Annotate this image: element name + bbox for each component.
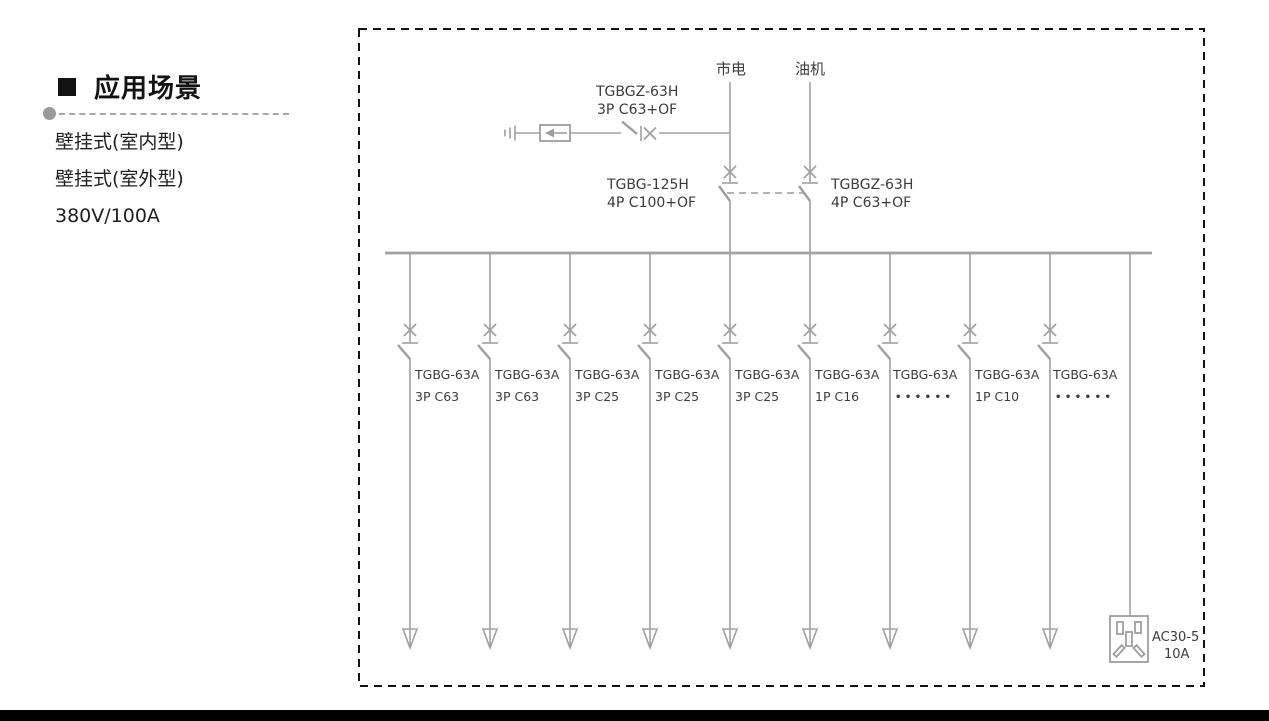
diagram-border (359, 29, 1204, 686)
generator-label: 油机 (795, 60, 825, 78)
branch-5: TGBG-63A 3P C25 (718, 253, 800, 648)
branch-model: TGBG-63A (574, 367, 640, 382)
branch-9: TGBG-63A •••••• (1038, 253, 1118, 648)
spd-breaker-model: TGBGZ-63H (595, 84, 678, 100)
branch-2: TGBG-63A 3P C63 (478, 253, 560, 648)
mains-breaker-rating: 4P C100+OF (607, 195, 696, 211)
branch-rating-dots: •••••• (1055, 392, 1114, 403)
branch-rating: 3P C25 (735, 389, 779, 404)
spd-branch: TGBGZ-63H 3P C63+OF (505, 84, 730, 141)
branch-6: TGBG-63A 1P C16 (798, 253, 880, 648)
spd-breaker-icon (622, 122, 656, 142)
branch-rating: 1P C16 (815, 389, 859, 404)
branch-3: TGBG-63A 3P C25 (558, 253, 640, 648)
branch-rating: 3P C25 (655, 389, 699, 404)
single-line-diagram: 市电 TGBG-125H 4P C100+OF 油机 TGBGZ-63H 4P … (0, 0, 1269, 721)
branch-rating: 1P C10 (975, 389, 1019, 404)
socket-rating: 10A (1164, 647, 1190, 662)
branch-1: TGBG-63A 3P C63 (398, 253, 480, 648)
branch-rating: 3P C25 (575, 389, 619, 404)
branch-4: TGBG-63A 3P C25 (638, 253, 720, 648)
page: 应用场景 壁挂式(室内型) 壁挂式(室外型) 380V/100A 市 (0, 0, 1269, 721)
branch-model: TGBG-63A (814, 367, 880, 382)
spd-icon (540, 125, 570, 141)
branch-model: TGBG-63A (654, 367, 720, 382)
branch-7: TGBG-63A •••••• (878, 253, 958, 648)
branch-model: TGBG-63A (1052, 367, 1118, 382)
socket-branch: AC30-5 10A (1110, 253, 1199, 662)
branch-model: TGBG-63A (734, 367, 800, 382)
mains-label: 市电 (716, 60, 746, 78)
branch-model: TGBG-63A (414, 367, 480, 382)
generator-breaker-rating: 4P C63+OF (831, 195, 911, 211)
branch-rating-dots: •••••• (895, 392, 954, 403)
branch-rating: 3P C63 (495, 389, 539, 404)
branch-model: TGBG-63A (494, 367, 560, 382)
socket-model: AC30-5 (1152, 630, 1199, 645)
branch-model: TGBG-63A (974, 367, 1040, 382)
ground-icon (505, 126, 515, 141)
branch-8: TGBG-63A 1P C10 (958, 253, 1040, 648)
generator-breaker-model: TGBGZ-63H (830, 177, 913, 193)
mains-breaker-model: TGBG-125H (606, 177, 689, 193)
branch-model: TGBG-63A (892, 367, 958, 382)
branch-rating: 3P C63 (415, 389, 459, 404)
spd-breaker-rating: 3P C63+OF (597, 102, 677, 118)
socket-icon (1110, 616, 1148, 662)
incoming-feed-generator: 油机 TGBGZ-63H 4P C63+OF (795, 60, 913, 253)
bottom-rule (0, 710, 1269, 721)
